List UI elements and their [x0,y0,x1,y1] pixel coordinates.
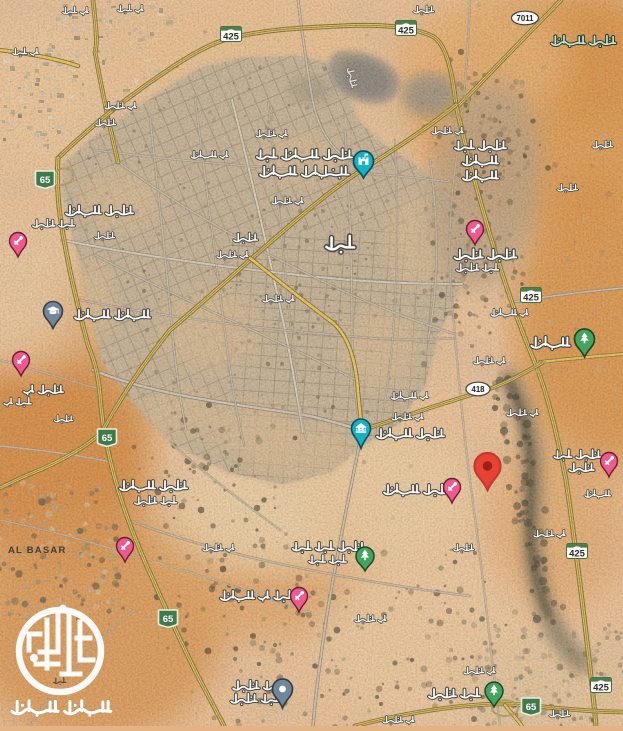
svg-text:65: 65 [40,175,51,186]
svg-text:65: 65 [526,702,537,713]
svg-text:425: 425 [223,32,240,43]
svg-text:425: 425 [569,549,586,560]
svg-text:65: 65 [102,433,113,444]
svg-text:418: 418 [471,385,485,394]
svg-text:AL BASAR: AL BASAR [8,545,67,556]
svg-text:7011: 7011 [517,14,535,23]
svg-text:65: 65 [163,614,174,625]
svg-text:425: 425 [523,293,540,304]
svg-text:425: 425 [593,683,610,694]
svg-text:425: 425 [398,26,415,37]
